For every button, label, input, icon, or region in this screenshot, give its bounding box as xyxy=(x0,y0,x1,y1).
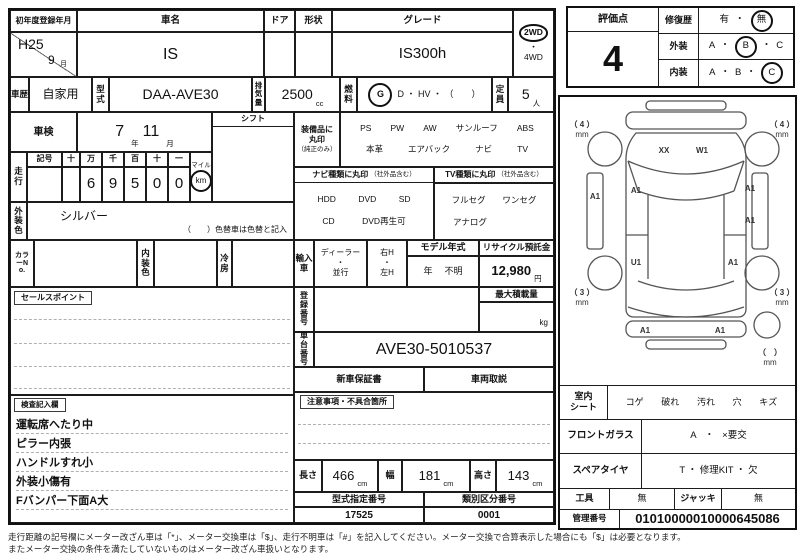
yen-unit: 円 xyxy=(534,275,542,286)
equip-item: 本革 xyxy=(366,145,383,154)
rear-bottom-bar xyxy=(646,340,726,349)
height-label: 高さ xyxy=(470,460,496,492)
car-name-header: 車名 xyxy=(77,10,264,32)
tv-type-header: TV種類に丸印 （社外品含む） xyxy=(434,167,554,183)
repair-dot: ・ xyxy=(735,15,745,25)
ruled-line xyxy=(14,319,290,320)
rear-window-bottom xyxy=(628,307,744,317)
color-no-value xyxy=(34,240,137,287)
displacement-value: 2500 cc xyxy=(265,77,340,112)
length-unit: cm xyxy=(357,480,367,491)
drive-2wd-circled: 2WD xyxy=(519,24,548,41)
left-handle: 左H xyxy=(380,269,394,278)
shape-header: 形状 xyxy=(295,10,332,32)
max-load-value: kg xyxy=(479,302,554,332)
model-year-unit: 年 xyxy=(423,267,432,277)
seat-label: 室内 xyxy=(574,392,592,402)
length-label: 長さ xyxy=(294,460,322,492)
tools-label: 工具 xyxy=(560,488,610,509)
glass-grade-a: A xyxy=(690,431,696,441)
nav-type-note: （社外品含む） xyxy=(370,171,416,178)
mark-left-rear-u1: U1 xyxy=(631,258,642,267)
grade-value: IS300h xyxy=(332,32,513,77)
equipment-label: 装備品に xyxy=(301,126,333,135)
mileage-digit xyxy=(62,167,80,202)
chassis-label: 車台番号 xyxy=(294,332,314,367)
interior-c-circled: C xyxy=(761,62,783,84)
ruled-line xyxy=(298,424,550,425)
car-damage-diagram: （ 4 ） mm （ 4 ） mm （ 3 ） mm （ 3 ） mm （ ） … xyxy=(560,97,795,385)
equipment-label-cell: 装備品に 丸印 （純正のみ） xyxy=(294,112,340,167)
eval-score: 4 xyxy=(568,32,659,86)
nav-item: CD xyxy=(322,217,334,226)
seat-label: シート xyxy=(570,403,597,413)
tv-item: アナログ xyxy=(453,218,487,227)
grade-dot: ・ xyxy=(720,41,730,51)
equipment-items: PS PW AW サンルーフ ABS 本革 エアバック ナビ TV xyxy=(340,112,554,167)
equip-item: AW xyxy=(423,124,436,133)
tread-unit: mm xyxy=(575,298,589,307)
rear-window-top xyxy=(638,281,734,290)
nav-type-header: ナビ種類に丸印 （社外品含む） xyxy=(294,167,434,183)
seat-item: 穴 xyxy=(733,398,742,408)
nav-type-title: ナビ種類に丸印 xyxy=(312,171,368,180)
jack-value: 無 xyxy=(722,488,795,509)
recycle-value: 12,980 xyxy=(491,264,531,278)
width-number: 181 xyxy=(419,469,441,483)
reg-month: 9 xyxy=(48,54,55,67)
sales-point-chip: セールスポイント xyxy=(14,291,92,305)
nav-item: HDD xyxy=(317,195,335,204)
windshield-top xyxy=(628,161,744,174)
mark-hood-xx: XX xyxy=(659,146,670,155)
import-dealer: ディーラー xyxy=(321,249,360,258)
length-number: 466 xyxy=(333,469,355,483)
km-circled: km xyxy=(190,170,212,192)
displacement-unit: cc xyxy=(316,100,324,111)
recycle-value-cell: 12,980 円 xyxy=(479,256,554,287)
inspection-note: ピラー内張 xyxy=(16,433,288,453)
fuel-label: 燃料 xyxy=(340,77,357,112)
spare-tire-label: スペアタイヤ xyxy=(560,453,642,488)
interior-grade-value: A ・ B ・ C xyxy=(699,60,793,86)
max-load-header: 最大積載量 xyxy=(479,287,554,302)
tread-unit: mm xyxy=(775,130,789,139)
mileage-symbol-header: 記号 xyxy=(27,152,62,167)
tread-spare: （ ） xyxy=(758,347,782,357)
footer-notes: 走行距離の記号欄にメーター改ざん車は「*」、メーター交換車は「$」、走行不明車は… xyxy=(8,532,796,555)
glass-dot: ・ xyxy=(705,431,715,441)
shaken-year: 7 xyxy=(115,123,124,141)
drive-dot: ・ xyxy=(529,43,538,52)
handle-dot: ・ xyxy=(383,259,391,268)
front-top-bar xyxy=(646,101,726,110)
mileage-col-header: 百 xyxy=(124,152,146,167)
mileage-label: 走行 xyxy=(10,152,27,202)
mileage-col-header: 十 xyxy=(62,152,80,167)
recycle-header: リサイクル預託金 xyxy=(479,240,554,256)
fuel-options: D ・ HV ・ （ ） xyxy=(397,90,480,100)
interior-color-value xyxy=(154,240,217,287)
mileage-col-header: 千 xyxy=(102,152,124,167)
tv-item: ワンセグ xyxy=(502,196,536,205)
mileage-digit: 0 xyxy=(168,167,190,202)
tools-value: 無 xyxy=(610,488,675,509)
width-unit: cm xyxy=(443,480,453,491)
capacity-unit: 人 xyxy=(533,100,541,111)
mgmt-number-value: 01010000010000645086 xyxy=(620,509,795,528)
height-unit: cm xyxy=(532,480,542,491)
import-label: 輸入車 xyxy=(294,240,314,287)
grade-b: B xyxy=(735,68,741,78)
registration-label: 登録番号 xyxy=(294,287,314,332)
spare-tire-value: T ・ 修理KIT ・ 欠 xyxy=(642,453,795,488)
inspection-chip: 検査記入欄 xyxy=(14,398,66,412)
equip-item: エアバック xyxy=(408,145,450,154)
evaluation-box: 評価点 4 修復歴 有 ・ 無 外装 A ・ B ・ C 内装 A ・ B ・ … xyxy=(566,6,795,88)
nav-item: DVD再生可 xyxy=(362,217,405,226)
equip-item: ナビ xyxy=(475,145,492,154)
color-no-label: カラーNo. xyxy=(10,240,34,287)
import-handle-cell: 右H ・ 左H xyxy=(367,240,407,287)
car-name-value: IS xyxy=(77,32,264,77)
windshield-side xyxy=(734,161,744,191)
manual-cell: 車両取説 xyxy=(424,367,554,392)
model-code-label: 型式 xyxy=(92,77,109,112)
model-year-header: モデル年式 xyxy=(407,240,479,256)
tread-rear-left: （ 3 ） xyxy=(570,287,595,297)
spare-wheel xyxy=(754,312,780,338)
door-value xyxy=(264,32,295,77)
kg-unit: kg xyxy=(540,319,553,331)
caution-chip: 注意事項・不具合箇所 xyxy=(300,395,394,409)
class-number-value: 0001 xyxy=(424,507,554,523)
tv-item: フルセグ xyxy=(452,196,486,205)
mark-right-mid: A1 xyxy=(745,216,756,225)
wheel-front-left xyxy=(588,132,622,166)
footer-line: またメーター交換の条件を満たしていないものはメーター改ざん車扱いとなります。 xyxy=(8,544,796,556)
reg-year: H25 xyxy=(18,37,44,52)
front-glass-value: A ・ ×要交 xyxy=(642,419,795,453)
eval-score-header: 評価点 xyxy=(568,8,659,32)
fuel-gasoline-circled: G xyxy=(368,83,392,107)
chassis-value: AVE30-5010537 xyxy=(314,332,554,367)
repair-yes: 有 xyxy=(719,15,729,25)
mileage-symbol-value xyxy=(27,167,62,202)
model-code-value: DAA-AVE30 xyxy=(109,77,252,112)
shift-cell: シフト xyxy=(212,112,294,202)
exterior-grade-value: A ・ B ・ C xyxy=(699,34,793,60)
mark-hood-w1: W1 xyxy=(696,146,709,155)
tv-type-title: TV種類に丸印 xyxy=(445,171,495,180)
door-header: ドア xyxy=(264,10,295,32)
exterior-b-circled: B xyxy=(735,36,757,58)
tread-unit: mm xyxy=(763,358,777,367)
grade-dot: ・ xyxy=(746,68,756,78)
tread-front-right: （ 4 ） xyxy=(770,119,795,129)
capacity-label: 定員 xyxy=(492,77,508,112)
width-label: 幅 xyxy=(378,460,402,492)
interior-color-label: 内装色 xyxy=(137,240,154,287)
tread-rear-right: （ 3 ） xyxy=(770,287,795,297)
reg-month-unit: 月 xyxy=(60,61,67,69)
auction-sheet: { "head": { "reg_label": "初年度登録年月", "reg… xyxy=(0,0,800,557)
mark-rear-bumper-left: A1 xyxy=(640,326,651,335)
inspection-note: ハンドルすれ小 xyxy=(16,452,288,472)
registration-value xyxy=(314,287,479,332)
height-value: 143 cm xyxy=(496,460,554,492)
grade-header: グレード xyxy=(332,10,513,32)
repair-history-value: 有 ・ 無 xyxy=(699,8,793,34)
mileage-digit: 9 xyxy=(102,167,124,202)
displacement-label: 排気量 xyxy=(252,77,265,112)
shaken-month: 11 xyxy=(143,123,160,141)
seat-item: 破れ xyxy=(661,398,679,408)
seat-items: コゲ 破れ 汚れ 穴 キズ xyxy=(608,385,795,419)
shaken-month-unit: 月 xyxy=(166,140,174,151)
repair-history-label: 修復歴 xyxy=(659,8,699,34)
jack-label: ジャッキ xyxy=(675,488,722,509)
footer-line: 走行距離の記号欄にメーター改ざん車は「*」、メーター交換車は「$」、走行不明車は… xyxy=(8,532,796,544)
seat-item: 汚れ xyxy=(697,398,715,408)
model-year-unknown: 不明 xyxy=(445,267,463,277)
history-value: 自家用 xyxy=(29,77,92,112)
fuel-value: G D ・ HV ・ （ ） xyxy=(357,77,492,112)
class-number-header: 類別区分番号 xyxy=(424,492,554,507)
repair-no-circled: 無 xyxy=(751,10,773,32)
equip-item: ABS xyxy=(517,124,534,133)
grade-a: A xyxy=(709,41,715,51)
length-value: 466 cm xyxy=(322,460,378,492)
mileage-unit-cell: マイル km xyxy=(190,152,212,202)
history-label: 車歴 xyxy=(10,77,29,112)
front-glass-label: フロントガラス xyxy=(560,419,642,453)
tread-unit: mm xyxy=(775,298,789,307)
shaken-year-unit: 年 xyxy=(131,140,139,151)
exterior-grade-label: 外装 xyxy=(659,34,699,60)
mileage-digit: 5 xyxy=(124,167,146,202)
equip-item: サンルーフ xyxy=(456,124,498,133)
ruled-line xyxy=(14,388,290,389)
interior-grade-label: 内装 xyxy=(659,60,699,86)
ac-value xyxy=(232,240,294,287)
tv-items: フルセグ ワンセグ アナログ xyxy=(434,183,554,240)
glass-replace-needed: ×要交 xyxy=(722,431,747,441)
left-rocker xyxy=(587,173,603,249)
ruled-line xyxy=(14,343,290,344)
tv-type-note: （社外品含む） xyxy=(497,171,543,178)
capacity-value: 5 人 xyxy=(508,77,554,112)
nav-items: HDD DVD SD CD DVD再生可 xyxy=(294,183,434,240)
ruled-line xyxy=(298,443,550,444)
grade-dot: ・ xyxy=(720,68,730,78)
mile-label: マイル xyxy=(191,162,211,169)
ext-color-value-cell: シルバー （ ）色替車は色替と記入 xyxy=(27,202,294,240)
mark-right-front: A1 xyxy=(745,184,756,193)
reg-date-value: H25 9 月 xyxy=(10,32,77,77)
wheel-front-right xyxy=(745,132,779,166)
main-table: 初年度登録年月 H25 9 月 車名 IS ドア 形状 グレード IS300h … xyxy=(8,8,556,525)
equipment-note: （純正のみ） xyxy=(298,146,337,153)
displacement-number: 2500 xyxy=(282,87,313,102)
mileage-col-header: 十 xyxy=(146,152,168,167)
mark-right-rear: A1 xyxy=(728,258,739,267)
seat-label-cell: 室内 シート xyxy=(560,385,608,419)
mileage-digit: 0 xyxy=(146,167,168,202)
tread-unit: mm xyxy=(575,130,589,139)
width-value: 181 cm xyxy=(402,460,470,492)
seat-item: コゲ xyxy=(626,398,644,408)
mileage-digit: 6 xyxy=(80,167,102,202)
import-parallel: 並行 xyxy=(332,269,348,278)
equip-item: PS xyxy=(360,124,371,133)
equip-item: TV xyxy=(517,145,528,154)
ac-label: 冷房 xyxy=(217,240,232,287)
ruled-line xyxy=(14,366,290,367)
mark-left-door: A1 xyxy=(631,186,642,195)
inspection-note: 外装小傷有 xyxy=(16,471,288,491)
shaken-label: 車検 xyxy=(10,112,77,152)
tread-front-left: （ 4 ） xyxy=(570,119,595,129)
ext-color-note: （ ）色替車は色替と記入 xyxy=(183,226,287,235)
shaken-value: 7 年 11 月 xyxy=(77,112,212,152)
import-dealer-cell: ディーラー ・ 並行 xyxy=(314,240,367,287)
right-handle: 右H xyxy=(380,249,394,258)
front-bumper xyxy=(626,112,746,129)
seat-item: キズ xyxy=(759,398,777,408)
right-panel: （ 4 ） mm （ 4 ） mm （ 3 ） mm （ 3 ） mm （ ） … xyxy=(558,95,797,530)
shift-label: シフト xyxy=(213,113,293,127)
reg-date-header: 初年度登録年月 xyxy=(10,10,77,32)
type-designation-header: 型式指定番号 xyxy=(294,492,424,507)
grade-c: C xyxy=(776,41,783,51)
height-number: 143 xyxy=(508,469,530,483)
model-year-value: 年 不明 xyxy=(407,256,479,287)
drive-type-cell: 2WD ・ 4WD xyxy=(513,10,554,77)
mark-left-rocker: A1 xyxy=(590,192,601,201)
ext-color-label: 外装色 xyxy=(10,202,27,240)
import-dot: ・ xyxy=(336,259,344,268)
nav-item: SD xyxy=(399,195,411,204)
grade-dot: ・ xyxy=(762,41,772,51)
mgmt-number-label: 管理番号 xyxy=(560,509,620,528)
windshield-bottom xyxy=(638,191,734,200)
grade-a: A xyxy=(709,68,715,78)
capacity-number: 5 xyxy=(522,87,530,102)
shape-value xyxy=(295,32,332,77)
mark-rear-bumper-right: A1 xyxy=(715,326,726,335)
ext-color-value: シルバー xyxy=(60,210,108,223)
inspection-note: 運転席へたり中 xyxy=(16,414,288,434)
inspection-note: Fバンパー下面A大 xyxy=(16,490,288,510)
warranty-cell: 新車保証書 xyxy=(294,367,424,392)
wheel-rear-left xyxy=(588,256,622,290)
type-designation-value: 17525 xyxy=(294,507,424,523)
mileage-col-header: 万 xyxy=(80,152,102,167)
nav-item: DVD xyxy=(358,195,376,204)
mileage-col-header: 一 xyxy=(168,152,190,167)
drive-4wd: 4WD xyxy=(524,53,543,62)
equip-item: PW xyxy=(391,124,405,133)
wheel-rear-right xyxy=(745,256,779,290)
equipment-label: 丸印 xyxy=(309,136,325,145)
